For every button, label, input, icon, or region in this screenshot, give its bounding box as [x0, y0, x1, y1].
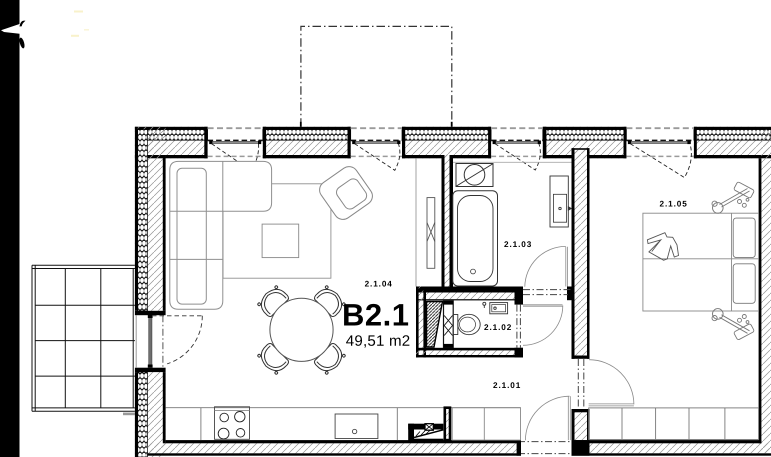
svg-text:2.1.05: 2.1.05	[659, 200, 687, 209]
svg-text:2.1.02: 2.1.02	[484, 323, 512, 332]
svg-text:2.1.01: 2.1.01	[493, 381, 521, 390]
svg-text:2.1.04: 2.1.04	[365, 280, 393, 289]
svg-text:49,51 m2: 49,51 m2	[346, 333, 411, 350]
svg-text:B2.1: B2.1	[342, 298, 410, 333]
svg-text:2.1.03: 2.1.03	[504, 240, 532, 249]
